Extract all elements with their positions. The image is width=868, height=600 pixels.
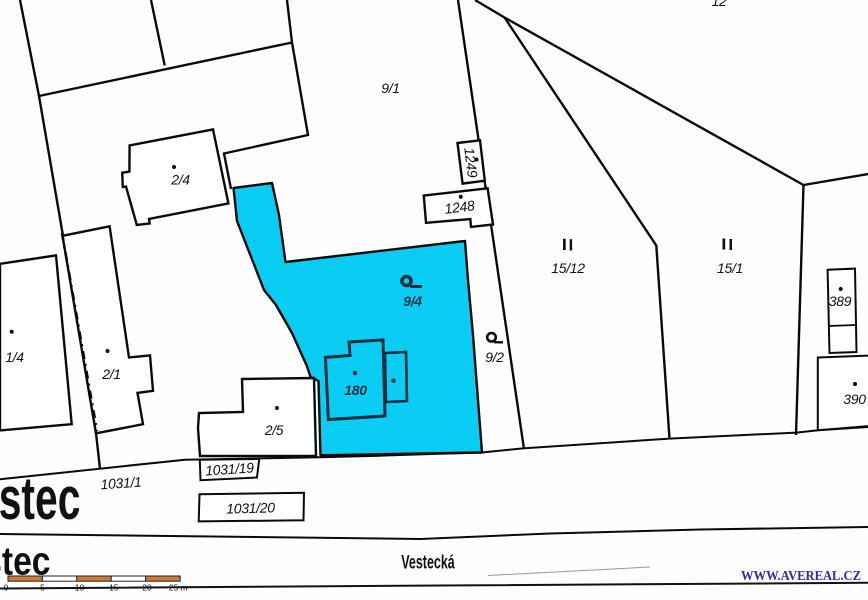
svg-text:389: 389	[829, 293, 852, 309]
svg-text:9/1: 9/1	[381, 80, 400, 96]
svg-text:1031/1: 1031/1	[100, 474, 142, 493]
svg-text:Vestecká: Vestecká	[401, 552, 455, 573]
svg-text:1031/19: 1031/19	[205, 459, 255, 478]
svg-text:390: 390	[843, 391, 866, 407]
svg-text:2/4: 2/4	[170, 172, 190, 188]
svg-text:10: 10	[75, 583, 85, 593]
svg-text:9/4: 9/4	[403, 293, 422, 309]
svg-text:1031/20: 1031/20	[226, 499, 275, 516]
svg-text:25 m: 25 m	[169, 583, 188, 593]
svg-text:5: 5	[40, 583, 45, 593]
svg-text:15/1: 15/1	[717, 260, 743, 276]
svg-text:15/12: 15/12	[551, 260, 585, 276]
svg-text:2/5: 2/5	[264, 422, 284, 438]
svg-text:1/4: 1/4	[5, 349, 24, 365]
svg-text:180: 180	[344, 382, 367, 398]
svg-text:0: 0	[4, 583, 9, 593]
svg-text:2/1: 2/1	[101, 366, 121, 382]
svg-text:20: 20	[142, 583, 152, 593]
svg-text:12: 12	[712, 0, 727, 9]
svg-text:Vestec: Vestec	[0, 465, 80, 532]
svg-text:WWW.AVEREAL.CZ: WWW.AVEREAL.CZ	[741, 568, 861, 583]
svg-text:9/2: 9/2	[485, 349, 504, 365]
svg-text:15: 15	[109, 583, 119, 593]
